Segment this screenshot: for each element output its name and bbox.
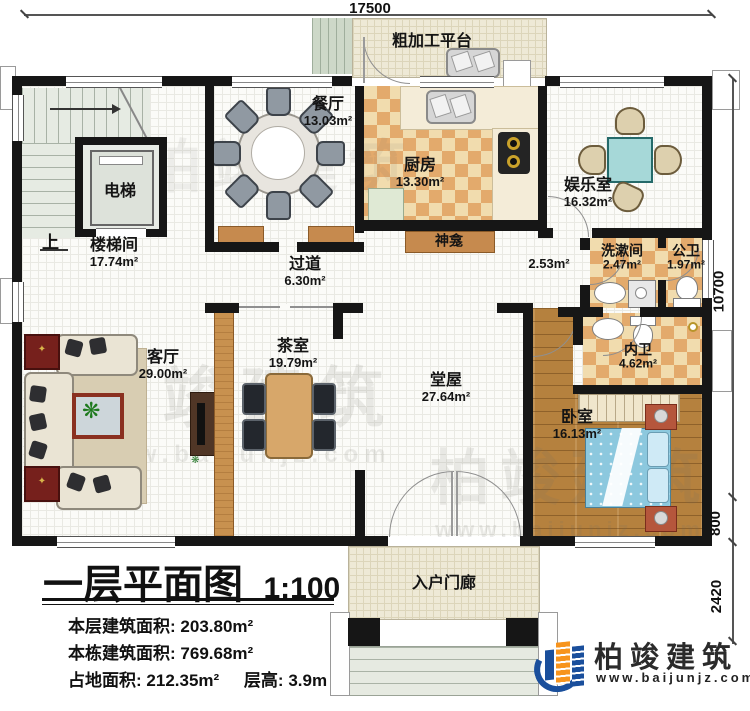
washing-machine — [628, 280, 656, 308]
room-name: 过道 — [284, 256, 325, 274]
door-leaf — [451, 471, 453, 536]
dimension-line-right — [732, 78, 734, 644]
kitchen-sink — [426, 90, 476, 124]
room-label-corridor: 过道 6.30m² — [284, 256, 325, 288]
porch-label-text: 入户门廊 — [412, 575, 476, 593]
window — [12, 282, 24, 322]
porch-pillar — [348, 618, 380, 646]
room-label-dining: 餐厅 13.03m² — [304, 96, 352, 128]
chair — [654, 145, 682, 175]
shrine-label-text: 神龛 — [435, 233, 463, 248]
flue-box — [503, 60, 531, 87]
room-name: 洗漱间 — [601, 244, 643, 259]
sink-basin — [473, 51, 495, 73]
room-area: 2.53m² — [528, 257, 569, 271]
lamp — [654, 511, 668, 525]
wall-segment — [640, 307, 712, 317]
wall-segment — [658, 238, 666, 248]
chair — [615, 107, 645, 135]
burner — [507, 137, 520, 150]
room-name: 客厅 — [139, 349, 187, 367]
room-area: 16.13m² — [553, 427, 601, 441]
room-area: 27.64m² — [422, 390, 470, 404]
room-label-tearoom: 茶室 19.79m² — [269, 338, 317, 370]
room-name: 堂屋 — [422, 372, 470, 390]
title-underline — [42, 598, 334, 601]
room-area: 13.30m² — [396, 175, 444, 189]
door-leaf — [456, 471, 458, 536]
sink-basin — [429, 94, 451, 118]
logo-building-bar — [572, 645, 584, 686]
stat-value: 203.80m² — [180, 617, 253, 636]
nightstand — [645, 506, 677, 532]
tv-desk — [190, 392, 216, 456]
wall-segment — [205, 242, 279, 252]
room-label-bedroom: 卧室 16.13m² — [553, 409, 601, 441]
room-area: 13.03m² — [304, 114, 352, 128]
room-name: 餐厅 — [304, 96, 352, 114]
stat-value: 3.9m — [288, 671, 327, 690]
room-label-living: 客厅 29.00m² — [139, 349, 187, 381]
stat-label: 占地面积: — [68, 671, 142, 690]
room-name: 娱乐室 — [564, 177, 612, 195]
chair — [266, 87, 291, 116]
room-area: 6.30m² — [284, 274, 325, 288]
wall-segment — [297, 242, 364, 252]
game-table — [607, 137, 653, 183]
stove — [498, 132, 530, 174]
chair — [312, 383, 336, 415]
chair — [578, 145, 606, 175]
chair — [242, 383, 266, 415]
kitchen-cabinet — [368, 188, 404, 223]
brand-logo: 柏竣建筑 www.baijunjz.com — [532, 632, 744, 702]
window-sill — [712, 70, 740, 110]
chair — [242, 419, 266, 451]
platform-green-mat — [312, 18, 352, 74]
window-sill — [712, 330, 732, 392]
room-label-hall: 堂屋 27.64m² — [422, 372, 470, 404]
wall-segment — [355, 470, 365, 536]
chair — [266, 191, 291, 220]
room-label-private-bath: 内卫 4.62m² — [619, 343, 657, 372]
porch-side-wall — [330, 612, 350, 696]
chair — [212, 141, 241, 166]
porch-label: 入户门廊 — [412, 575, 476, 593]
wall-segment — [538, 86, 547, 238]
room-area: 4.62m² — [619, 358, 657, 371]
window — [57, 536, 175, 548]
window — [232, 76, 332, 88]
stat-line-2: 本栋建筑面积: 769.68m² — [68, 639, 253, 664]
stairs-left-run — [22, 143, 80, 238]
pillow — [89, 337, 108, 356]
wall-segment — [364, 220, 538, 231]
wall-segment — [573, 385, 712, 394]
wall-segment — [547, 228, 553, 238]
vestibule-area-label: 2.53m² — [528, 257, 569, 271]
brand-logo-icon — [532, 636, 590, 694]
door-leaf — [363, 37, 365, 83]
logo-building-bar — [556, 641, 570, 684]
wall-segment — [523, 303, 533, 546]
room-label-entertainment: 娱乐室 16.32m² — [564, 177, 612, 209]
room-label-stairhall: 楼梯间 17.74m² — [90, 237, 138, 269]
wall-segment — [205, 303, 239, 313]
room-name: 公卫 — [667, 244, 705, 259]
stat-line-3: 占地面积: 212.35m² 层高: 3.9m — [68, 666, 327, 691]
stat-label: 本层建筑面积: — [68, 617, 176, 636]
room-name: 厨房 — [396, 157, 444, 175]
plant-icon: ❋ — [82, 398, 100, 424]
wall-segment — [658, 280, 666, 308]
up-underline — [40, 249, 68, 251]
corner-table: ✦ — [24, 334, 60, 370]
shower-head — [688, 322, 698, 332]
room-area: 19.79m² — [269, 356, 317, 370]
room-name: 楼梯间 — [90, 237, 138, 255]
room-area: 16.32m² — [564, 195, 612, 209]
wall-segment — [333, 303, 363, 313]
stat-label: 本栋建筑面积: — [68, 644, 176, 663]
wall-segment — [333, 313, 343, 339]
wood-partition — [214, 313, 234, 536]
elevator-panel — [99, 156, 143, 165]
title-underline-thin — [42, 604, 334, 605]
window — [560, 76, 664, 88]
sink-basin — [449, 94, 471, 118]
stat-label: 层高: — [244, 671, 284, 690]
shrine-label: 神龛 — [435, 233, 463, 248]
logo-building-bar — [545, 650, 554, 681]
plant-icon: ❋ — [191, 455, 199, 466]
sliding-door-gap — [280, 304, 290, 310]
brand-url: www.baijunjz.com — [596, 670, 746, 685]
window — [66, 76, 162, 88]
platform-label: 粗加工平台 — [392, 33, 472, 51]
room-area: 17.74m² — [90, 255, 138, 269]
room-name: 茶室 — [269, 338, 317, 356]
wall-segment — [580, 238, 590, 250]
elevator-label-text: 电梯 — [104, 183, 136, 201]
room-area: 1.97m² — [667, 259, 705, 272]
pillow — [29, 385, 47, 403]
tea-table — [265, 373, 313, 459]
platform-sink — [446, 48, 500, 78]
pillow — [29, 413, 48, 432]
room-area: 2.47m² — [601, 259, 643, 272]
dimension-right-mid: 800 — [707, 511, 724, 536]
window — [420, 76, 494, 88]
wall-segment — [592, 228, 712, 238]
dimension-top-value: 17500 — [340, 0, 400, 14]
floor-plan-sheet: 电梯 上 柏竣建筑 柏竣建筑 www.baijunjz.com 柏竣建筑 www… — [0, 0, 750, 711]
dining-table-top — [251, 126, 305, 180]
chair — [316, 141, 345, 166]
lamp — [654, 409, 668, 423]
stat-line-1: 本层建筑面积: 203.80m² — [68, 612, 253, 637]
corner-table: ✦ — [24, 466, 60, 502]
washer-drum — [635, 287, 647, 299]
room-label-washroom: 洗漱间 2.47m² — [601, 244, 643, 273]
window — [575, 536, 655, 548]
chair — [312, 419, 336, 451]
dimension-right-upper: 10700 — [710, 271, 727, 313]
room-area: 29.00m² — [139, 367, 187, 381]
stat-value: 212.35m² — [146, 671, 219, 690]
wall-segment — [497, 303, 523, 313]
wall-segment — [355, 86, 364, 233]
room-label-kitchen: 厨房 13.30m² — [396, 157, 444, 189]
burner — [507, 155, 520, 168]
tv-icon — [197, 403, 205, 445]
platform-label-text: 粗加工平台 — [392, 33, 472, 51]
room-label-public-bath: 公卫 1.97m² — [667, 244, 705, 273]
dimension-right-lower: 2420 — [708, 580, 725, 613]
stairs-direction-line — [50, 108, 112, 110]
wall-segment — [205, 86, 214, 252]
elevator-label: 电梯 — [104, 183, 136, 201]
room-name: 卧室 — [553, 409, 601, 427]
stat-value: 769.68m² — [180, 644, 253, 663]
pillow — [647, 432, 669, 467]
toilet — [676, 276, 698, 300]
wall-segment — [573, 313, 583, 345]
porch-steps — [348, 646, 540, 696]
sink — [594, 282, 626, 304]
window — [12, 95, 24, 141]
sink-basin — [451, 51, 473, 73]
wall-segment — [580, 285, 590, 308]
pillow — [647, 468, 669, 503]
title-block-heading: 一层平面图 1:100 — [43, 552, 343, 604]
stairs-arrow-head — [112, 104, 121, 114]
room-name: 内卫 — [619, 343, 657, 358]
nightstand — [645, 404, 677, 430]
